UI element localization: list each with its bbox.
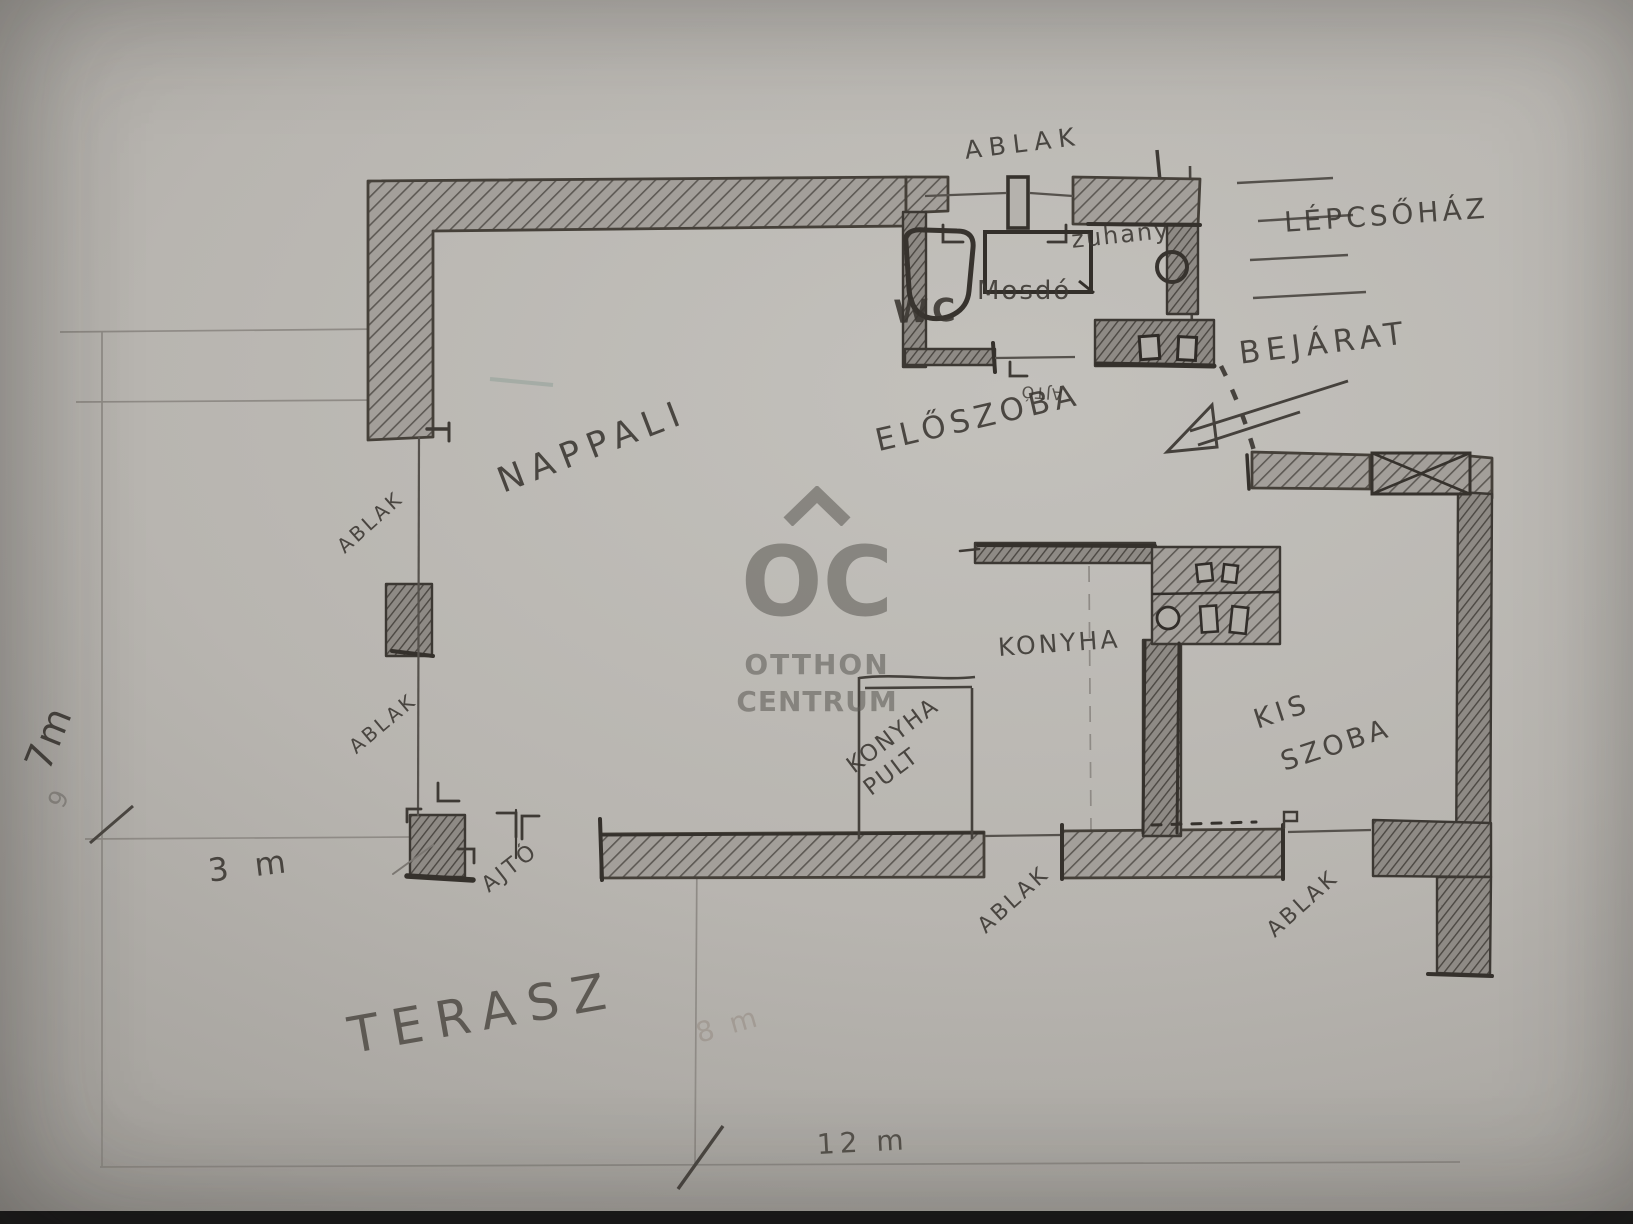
otthon-centrum-watermark: OC OTTHON CENTRUM [744, 486, 890, 718]
stray-green-mark [490, 379, 553, 385]
stairs-lines [1237, 178, 1366, 298]
floorplan-photo: OC OTTHON CENTRUM ABLAK LÉPCSŐHÁZ zuhany… [0, 0, 1633, 1224]
wall-kisszoba-top [1252, 452, 1370, 489]
dimension-lines [60, 329, 1460, 1167]
oc-logo-roof-icon [780, 486, 854, 526]
shaft-x-box [1372, 453, 1470, 494]
bottom-right-step-h [1373, 820, 1491, 877]
bottom-right-step-v [1437, 877, 1491, 975]
left-wall-pier-mid [386, 584, 432, 656]
bathroom-bottom-wall [905, 349, 995, 365]
dimension-label-12m: 12 m [816, 1123, 909, 1161]
konyha-thick-wall [1143, 640, 1181, 836]
oc-logo-text: OC [741, 534, 893, 632]
wall-tick-top [1157, 150, 1160, 181]
right-wall [1456, 492, 1492, 877]
entrance-arrow [1167, 381, 1348, 452]
wall-top-left-L [368, 177, 906, 440]
window-symbol [1008, 177, 1028, 228]
photo-table-edge [0, 1211, 1633, 1224]
wall-bottom-nappali [601, 832, 984, 878]
room-label-wc: WC [893, 291, 959, 331]
fixture-label-mosdo: Mosdó [977, 276, 1071, 306]
watermark-brand-line1: OTTHON [744, 648, 889, 681]
watermark-brand-line2: CENTRUM [736, 685, 897, 718]
hatched-walls [368, 177, 1492, 878]
bathroom-right-wall [1167, 224, 1198, 314]
left-wall-pier-bottom [410, 815, 465, 877]
